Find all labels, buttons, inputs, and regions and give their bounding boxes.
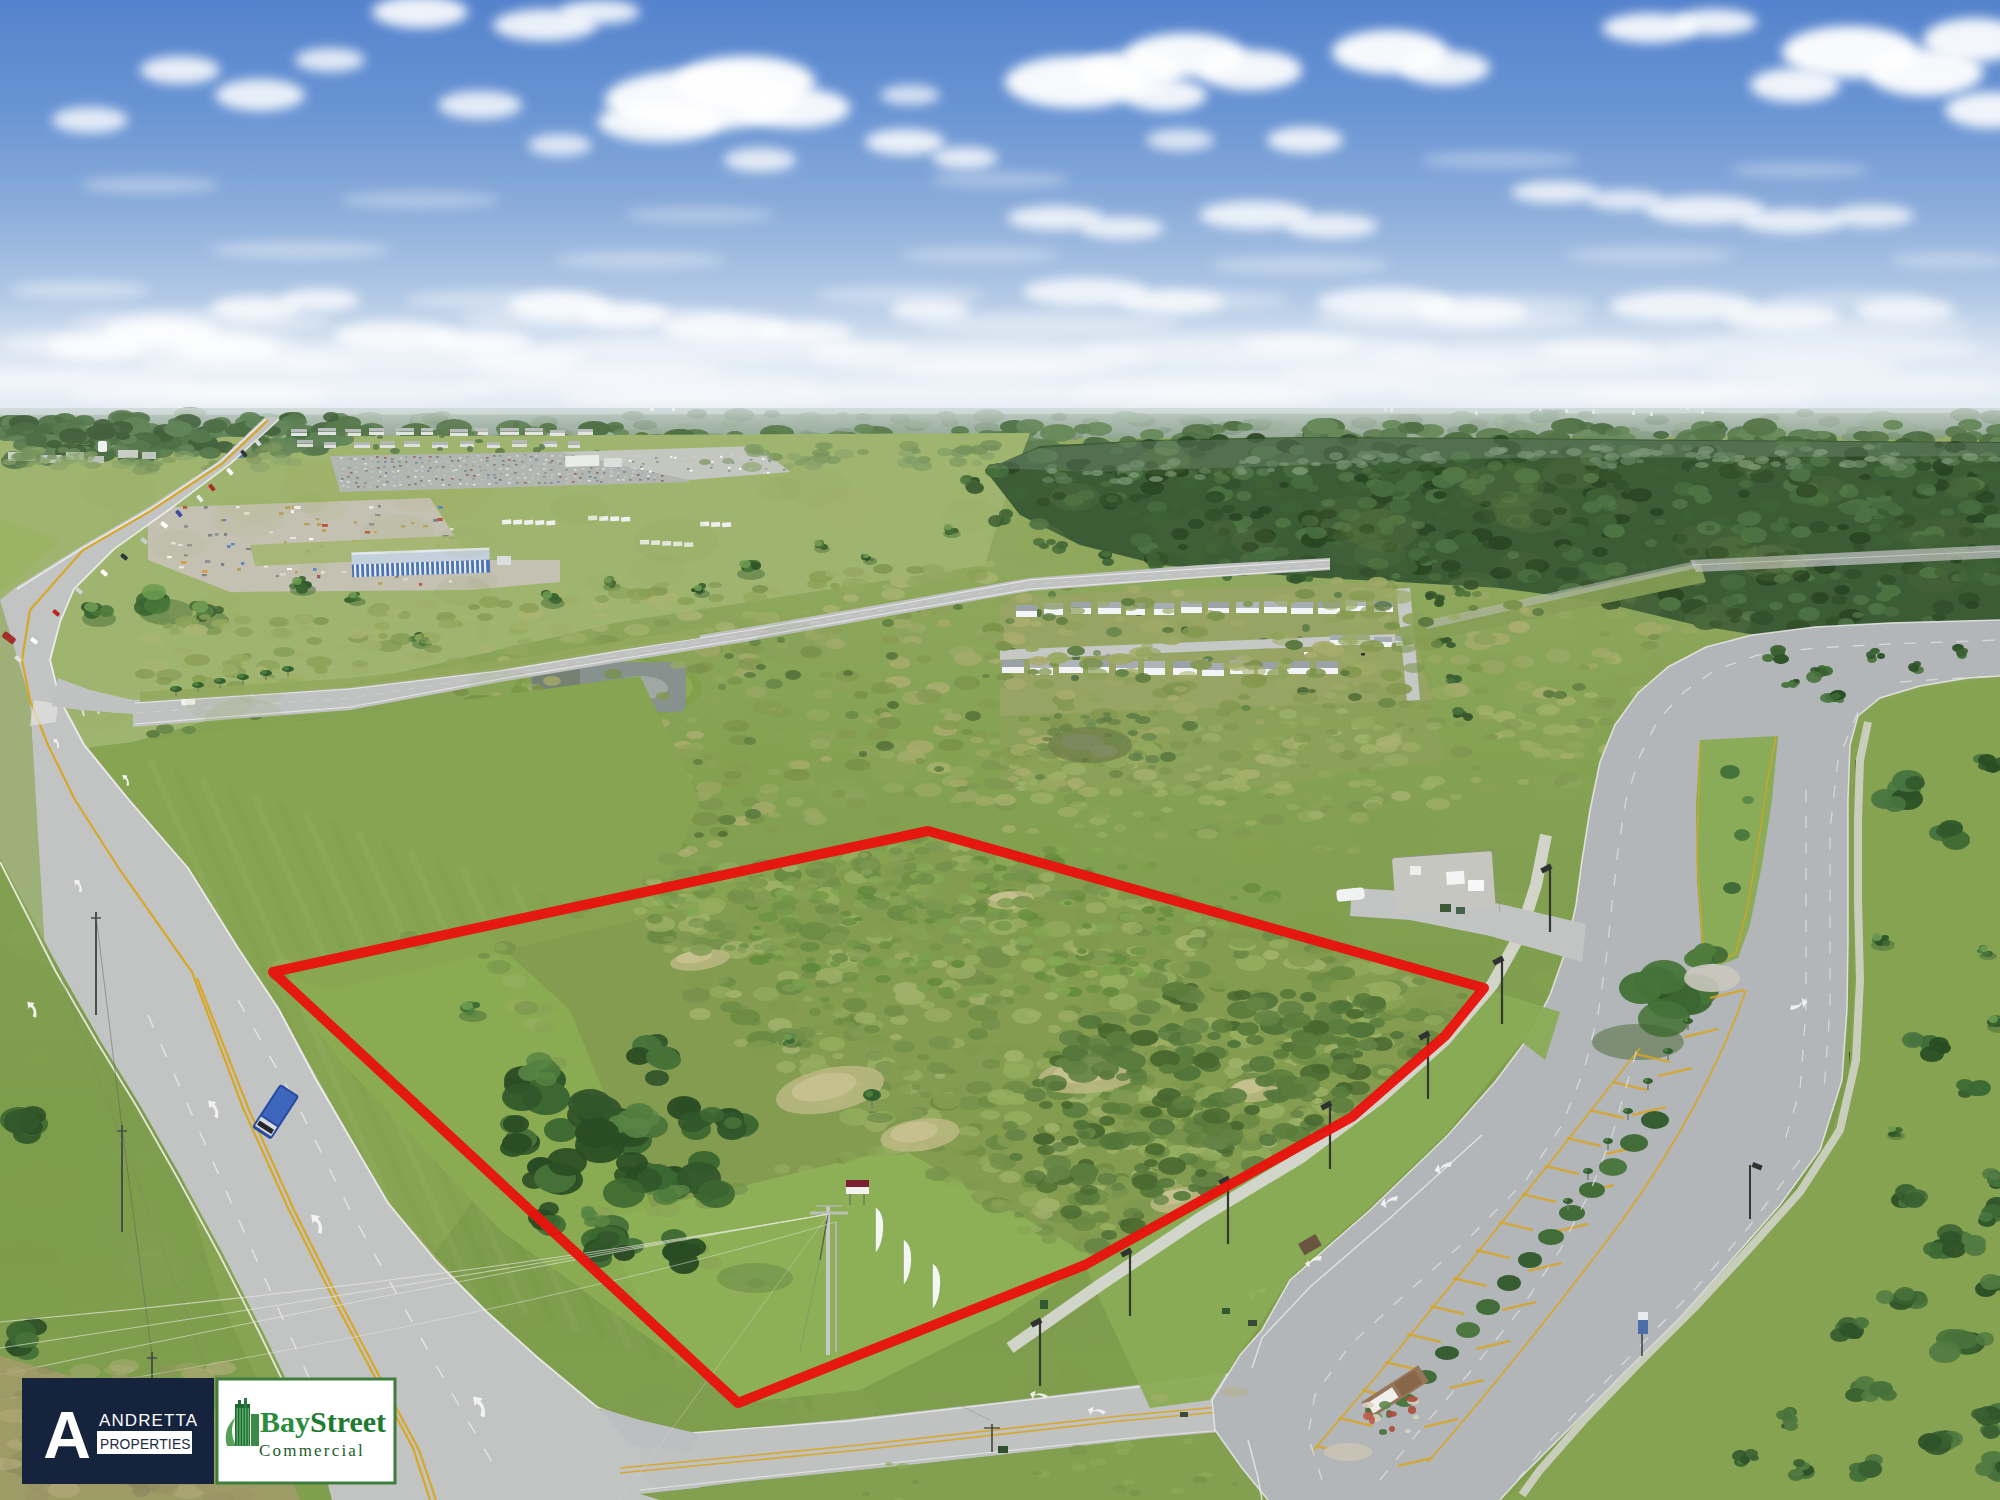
svg-text:A: A — [43, 1398, 91, 1472]
svg-text:PROPERTIES: PROPERTIES — [100, 1437, 191, 1452]
svg-text:Commercial: Commercial — [259, 1441, 365, 1460]
svg-text:BayStreet: BayStreet — [260, 1405, 386, 1438]
svg-text:ANDRETTA: ANDRETTA — [99, 1411, 198, 1430]
